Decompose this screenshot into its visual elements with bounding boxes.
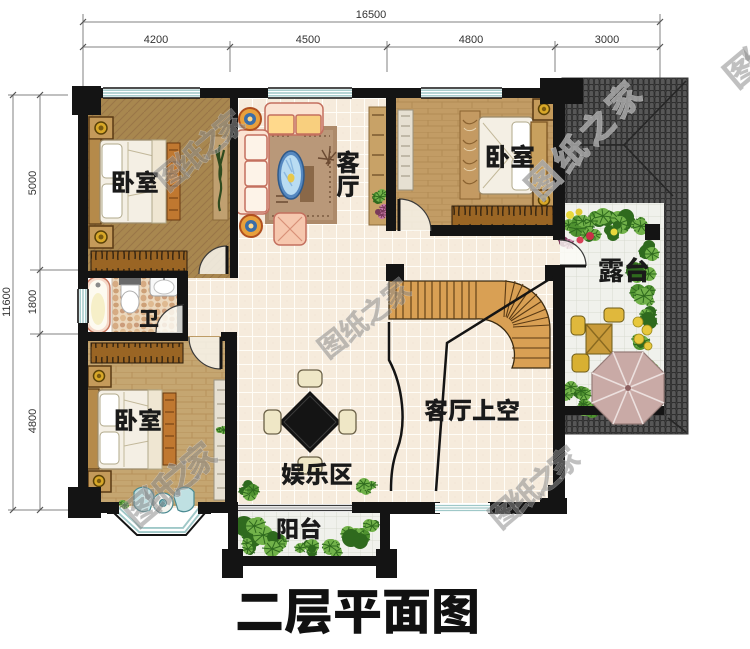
svg-text:4800: 4800: [459, 34, 483, 46]
svg-text:4200: 4200: [144, 34, 168, 46]
svg-text:4500: 4500: [296, 34, 320, 46]
svg-text:4800: 4800: [27, 409, 39, 433]
svg-text:5000: 5000: [27, 171, 39, 195]
svg-text:11600: 11600: [1, 287, 13, 317]
svg-text:1800: 1800: [27, 290, 39, 314]
svg-text:3000: 3000: [595, 34, 619, 46]
svg-text:16500: 16500: [356, 9, 387, 21]
